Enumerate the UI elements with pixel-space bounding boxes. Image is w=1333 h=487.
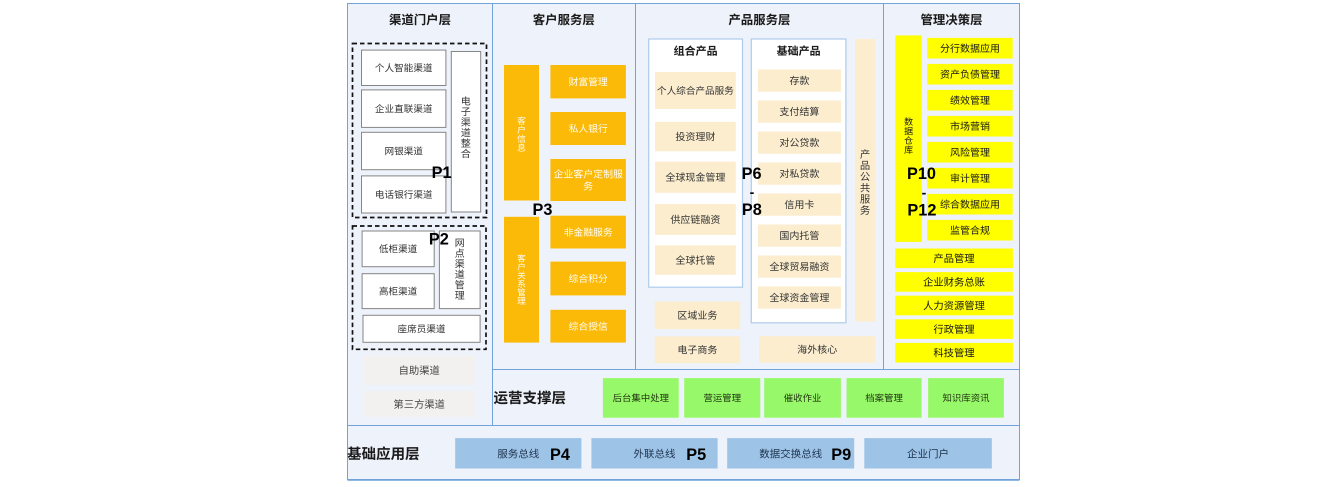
svg-text:-: - [922, 184, 927, 200]
svg-text:P1: P1 [432, 164, 452, 182]
svg-text:-: - [750, 184, 755, 200]
svg-text:P4: P4 [550, 446, 570, 464]
svg-text:P2: P2 [429, 230, 449, 248]
svg-text:P6: P6 [742, 165, 762, 183]
svg-text:P8: P8 [742, 201, 762, 219]
svg-text:P9: P9 [831, 446, 851, 464]
svg-text:P3: P3 [533, 201, 553, 219]
svg-text:P5: P5 [686, 446, 706, 464]
svg-text:P12: P12 [907, 201, 936, 219]
svg-text:P10: P10 [907, 165, 936, 183]
